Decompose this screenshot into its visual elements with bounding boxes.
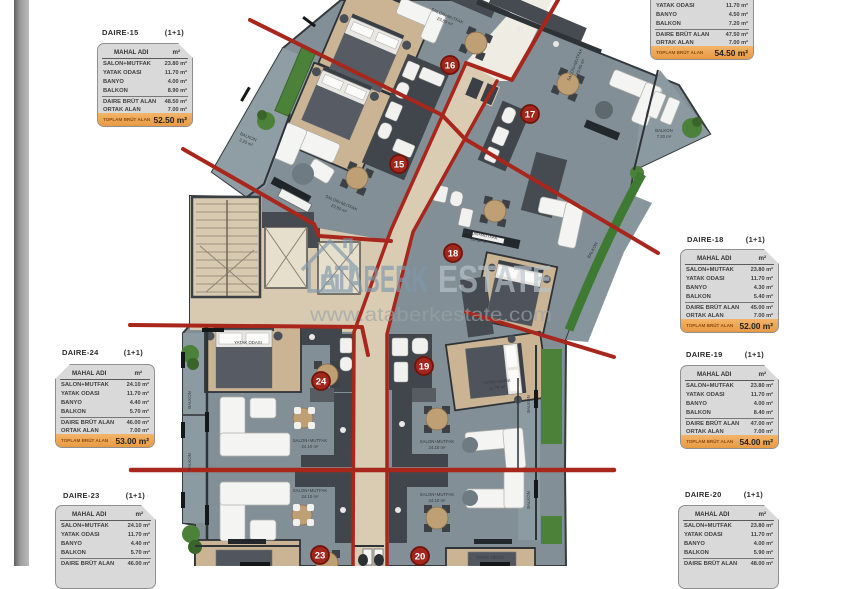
svg-text:BALKON: BALKON [526, 395, 531, 412]
svg-text:16: 16 [445, 61, 456, 72]
svg-text:SALON+MUTFAK: SALON+MUTFAK [420, 439, 455, 444]
svg-text:24.10 m²: 24.10 m² [429, 445, 447, 450]
svg-text:BALKON: BALKON [187, 391, 192, 408]
svg-text:SALON+MUTFAK: SALON+MUTFAK [293, 438, 328, 443]
svg-text:24: 24 [316, 377, 327, 388]
svg-text:www.ataberkestate.com: www.ataberkestate.com [309, 305, 552, 326]
svg-text:SALON+MUTFAK: SALON+MUTFAK [293, 488, 328, 493]
svg-text:ESTATE: ESTATE [438, 259, 552, 301]
svg-text:24.10 m²: 24.10 m² [302, 494, 320, 499]
svg-text:15: 15 [394, 160, 405, 171]
svg-text:7.20 m²: 7.20 m² [657, 134, 672, 139]
svg-text:18: 18 [448, 249, 459, 260]
svg-text:23: 23 [315, 551, 326, 562]
svg-text:BALKON: BALKON [526, 491, 531, 508]
svg-text:SALON+MUTFAK: SALON+MUTFAK [420, 492, 455, 497]
svg-text:BALKON: BALKON [187, 453, 192, 470]
svg-text:20: 20 [415, 552, 426, 563]
svg-text:YATAK ODASI: YATAK ODASI [234, 340, 262, 345]
svg-text:24.10 m²: 24.10 m² [302, 444, 320, 449]
svg-text:19: 19 [419, 362, 430, 373]
svg-text:17: 17 [525, 110, 536, 121]
svg-text:YATAK ODASI: YATAK ODASI [476, 555, 504, 560]
svg-text:ATABERK: ATABERK [320, 259, 428, 301]
svg-text:BALKON: BALKON [655, 128, 672, 133]
svg-text:24.10 m²: 24.10 m² [429, 498, 447, 503]
